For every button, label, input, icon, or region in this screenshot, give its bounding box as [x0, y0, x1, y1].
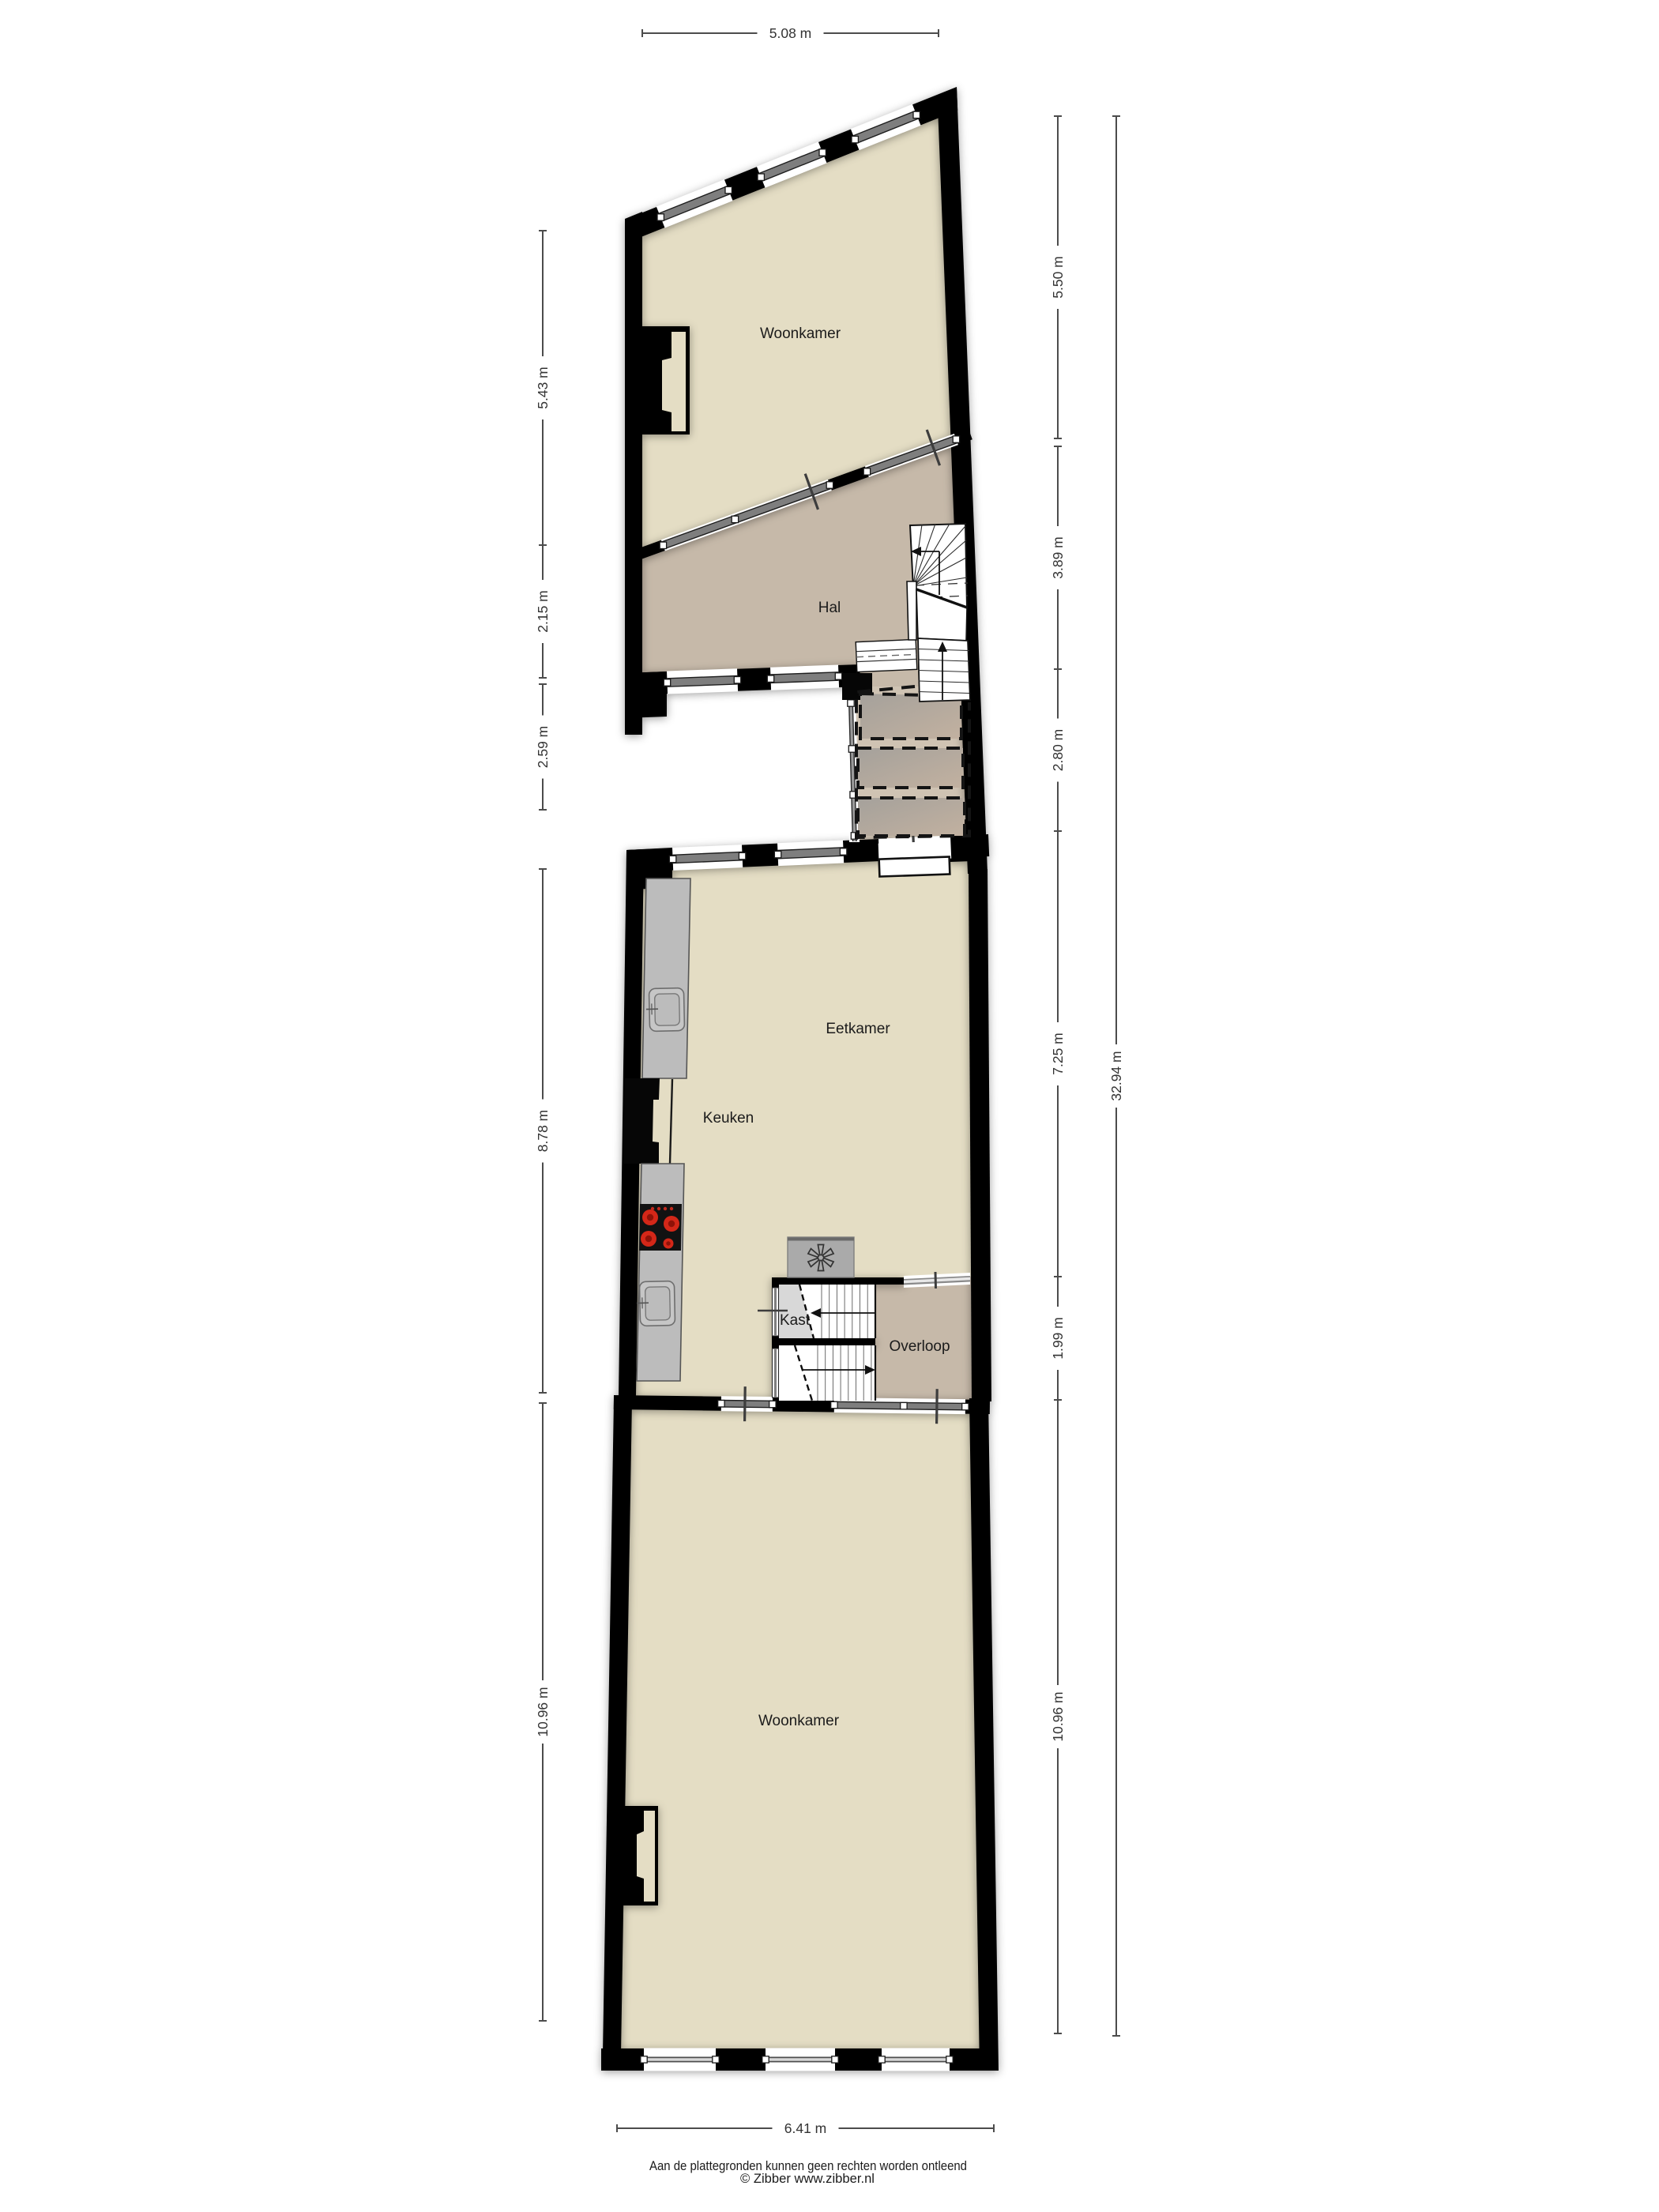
svg-text:Woonkamer: Woonkamer [758, 1713, 840, 1729]
svg-text:© Zibber www.zibber.nl: © Zibber www.zibber.nl [740, 2171, 875, 2186]
svg-text:32.94 m: 32.94 m [1108, 1051, 1124, 1100]
svg-text:3.89 m: 3.89 m [1050, 536, 1066, 579]
svg-text:5.08 m: 5.08 m [769, 25, 812, 41]
svg-text:6.41 m: 6.41 m [784, 2120, 827, 2136]
svg-text:2.80 m: 2.80 m [1050, 729, 1066, 772]
svg-text:10.96 m: 10.96 m [1050, 1691, 1066, 1741]
svg-text:1.99 m: 1.99 m [1050, 1317, 1066, 1360]
svg-text:Eetkamer: Eetkamer [826, 1021, 890, 1037]
svg-text:5.50 m: 5.50 m [1050, 256, 1066, 299]
svg-text:8.78 m: 8.78 m [535, 1110, 551, 1153]
svg-text:Kast: Kast [780, 1312, 811, 1329]
svg-text:Hal: Hal [818, 600, 841, 616]
svg-text:10.96 m: 10.96 m [535, 1687, 551, 1736]
svg-text:7.25 m: 7.25 m [1050, 1033, 1066, 1075]
svg-text:2.15 m: 2.15 m [535, 590, 551, 633]
svg-text:Keuken: Keuken [703, 1110, 754, 1127]
svg-text:5.43 m: 5.43 m [535, 367, 551, 409]
svg-text:Overloop: Overloop [889, 1338, 950, 1355]
svg-text:Woonkamer: Woonkamer [760, 325, 841, 342]
svg-text:2.59 m: 2.59 m [535, 726, 551, 769]
